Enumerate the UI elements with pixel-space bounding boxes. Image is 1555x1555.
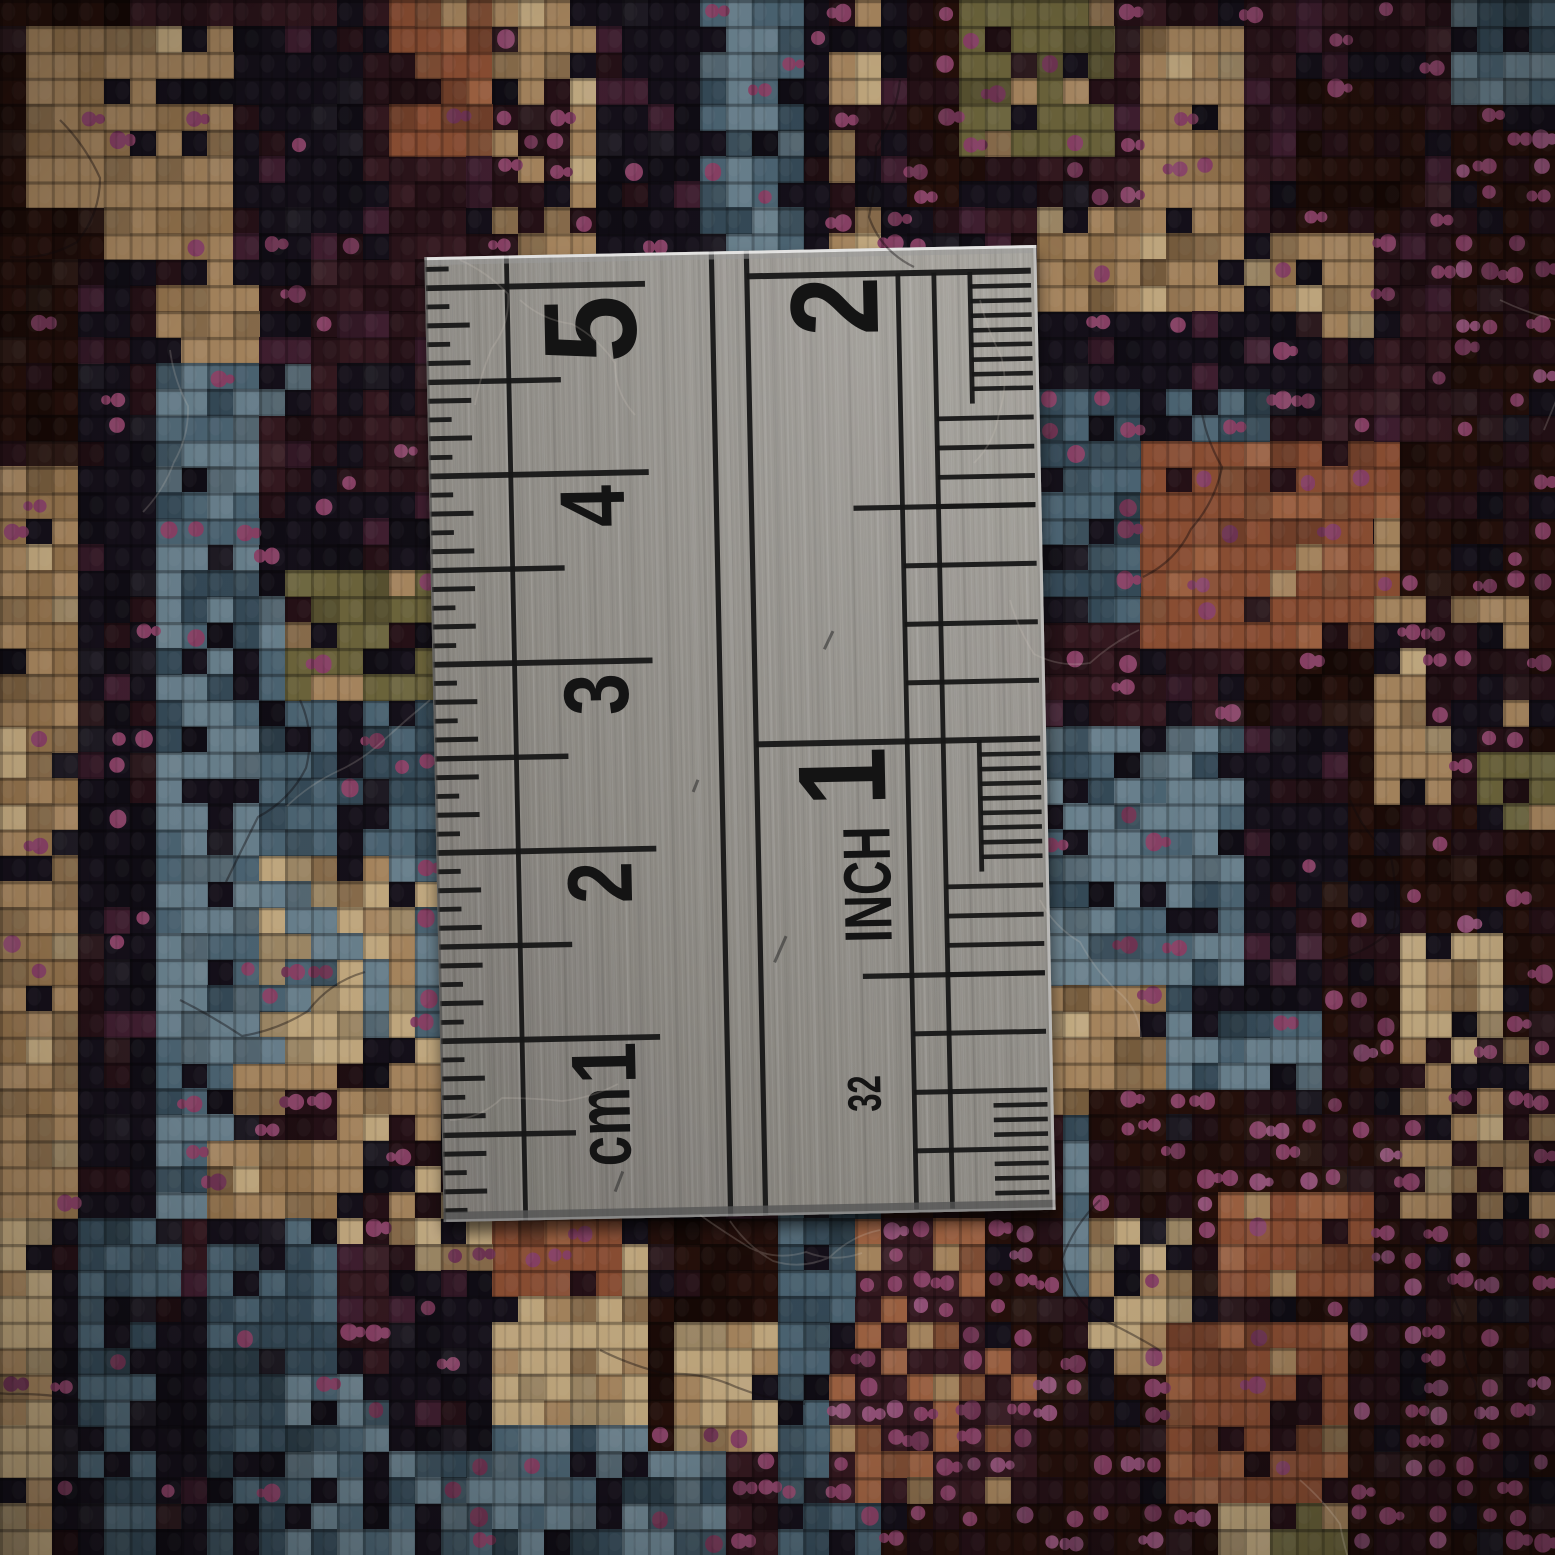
svg-text:2: 2 [548,861,652,905]
svg-text:3: 3 [544,672,648,716]
svg-text:5: 5 [515,294,664,364]
svg-text:4: 4 [541,484,645,528]
svg-text:2: 2 [764,276,905,338]
svg-text:INCH: INCH [829,826,906,944]
svg-text:32: 32 [837,1075,891,1113]
svg-text:1: 1 [552,1041,656,1085]
svg-text:1: 1 [771,746,912,808]
